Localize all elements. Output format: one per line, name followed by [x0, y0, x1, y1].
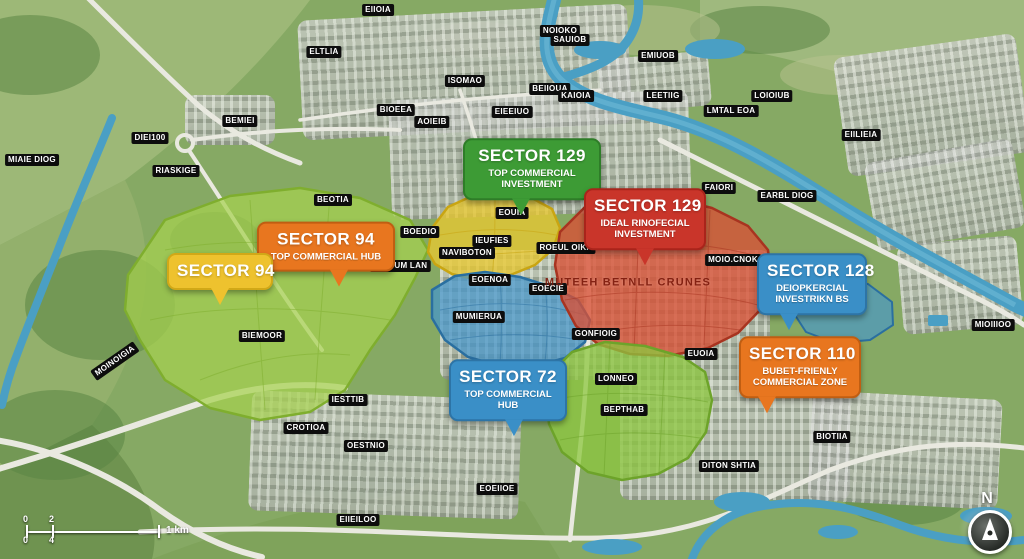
area-label-text: BEPTHAB [604, 405, 645, 414]
area-label: SAUIOB [551, 34, 590, 46]
area-label-text: LMTAL EOA [707, 106, 756, 115]
scale-label: 4 [49, 535, 54, 545]
callout-title: SECTOR 72 [459, 367, 557, 387]
area-label: BIEMOOR [239, 330, 285, 342]
area-label: LONNEO [595, 373, 637, 385]
area-label: IESTTIB [329, 394, 368, 406]
scale-label: 0 [23, 514, 28, 524]
area-label-text: ELTLIA [309, 47, 338, 56]
area-label: GONFIOIG [572, 328, 620, 340]
area-label: MOIO.CNOK [705, 254, 761, 266]
area-label: EOEIIOE [477, 483, 518, 495]
area-label-text: AOIEIB [417, 117, 446, 126]
callout-subtitle: TOP COMMERCIAL HUB [459, 389, 557, 412]
area-label-text: BOEDIO [403, 227, 436, 236]
area-label-text: LONNEO [598, 374, 634, 383]
area-label-text: BIOTIIA [816, 432, 847, 441]
area-label-text: NAVIBOTON [442, 248, 492, 257]
area-label-text: SAUIOB [554, 35, 587, 44]
area-label-text: EIEEIUO [495, 107, 530, 116]
scale-label-unit: 1 km [166, 525, 189, 536]
area-label-text: IEUFIES [475, 236, 508, 245]
area-label-text: BIEMOOR [242, 331, 282, 340]
area-label: MIAIE DIOG [5, 154, 59, 166]
area-label-text: IESTTIB [332, 395, 365, 404]
callout-sector-94-orange: SECTOR 94 TOP COMMERCIAL HUB [257, 222, 395, 272]
area-label: MUMIERUA [453, 311, 505, 323]
area-label-text: GONFIOIG [575, 329, 617, 338]
area-label-text: EIILIEIA [845, 130, 878, 139]
compass-center-dot [988, 530, 993, 535]
area-label-text: EMIUOB [641, 51, 675, 60]
area-label: BIOEEA [377, 104, 415, 116]
scale-bar: 0 2 1 km 0 4 [22, 516, 202, 550]
area-label: EUOIA [685, 348, 718, 360]
area-label-text: EARBL DIOG [760, 191, 813, 200]
scale-bar-line [26, 531, 160, 533]
area-label-text: BEOTIA [317, 195, 349, 204]
callout-subtitle: BUBET-FRIENLY COMMERCIAL ZONE [749, 366, 851, 389]
compass-arrow-icon [982, 518, 998, 540]
area-label: LEETIIG [643, 90, 682, 102]
area-label-text: BIOEEA [380, 105, 412, 114]
area-label: LOIOIUB [751, 90, 792, 102]
callout-title: SECTOR 94 [267, 230, 385, 250]
area-label: EIILIEIA [842, 129, 881, 141]
area-label-text: EOEIIOE [480, 484, 515, 493]
area-label: CROTIOA [284, 422, 329, 434]
area-label: MIOIIIOO [972, 319, 1015, 331]
area-label: ELTLIA [306, 46, 341, 58]
area-label: MUTEEH BETNLL CRUNES [545, 278, 711, 289]
area-label-text: CROTIOA [287, 423, 326, 432]
area-label: LMTAL EOA [704, 105, 759, 117]
area-label-text: BEMIEI [225, 116, 254, 125]
area-label-text: DIEI100 [134, 133, 165, 142]
area-label-text: EOENOA [472, 275, 508, 284]
area-label-text: FAIORI [705, 183, 733, 192]
callout-subtitle: DEIOPKERCIAL INVESTRIKN BS [767, 283, 857, 306]
area-label: BEMIEI [222, 115, 257, 127]
callout-subtitle: TOP COMMERCIAL HUB [267, 252, 385, 263]
area-label: EOENOA [469, 274, 511, 286]
area-label-text: RIASKIGE [155, 166, 196, 175]
area-label-text: OESTNIO [347, 441, 385, 450]
area-label-text: MUTEEH BETNLL CRUNES [545, 277, 711, 289]
compass-north-label: N [981, 490, 993, 508]
area-label: RIASKIGE [152, 165, 199, 177]
callout-sector-129-green: SECTOR 129 TOP COMMERCIAL INVESTMENT [463, 138, 601, 200]
area-label: BIOTIIA [813, 431, 850, 443]
area-label: EARBL DIOG [757, 190, 816, 202]
area-label: NAVIBOTON [439, 247, 495, 259]
area-label: EIEEIUO [492, 106, 533, 118]
area-label: FAIORI [702, 182, 736, 194]
area-label: EIIEILOO [336, 514, 379, 526]
area-label: IEUFIES [472, 235, 511, 247]
area-label: EMIUOB [638, 50, 678, 62]
callout-title: SECTOR 129 [473, 146, 591, 166]
callout-sector-94-yellow: SECTOR 94 [167, 253, 273, 290]
area-label-text: MOIO.CNOK [708, 255, 758, 264]
area-label: BOEDIO [400, 226, 439, 238]
scale-label: 0 [23, 535, 28, 545]
area-label-text: DITON SHTIA [702, 461, 756, 470]
area-label: EIIOIA [362, 4, 394, 16]
area-label: DIEI100 [131, 132, 168, 144]
area-label-text: MIOIIIOO [975, 320, 1012, 329]
callout-title: SECTOR 110 [749, 344, 851, 364]
area-label-text: KAIOIA [561, 91, 591, 100]
area-label-text: MUMIERUA [456, 312, 502, 321]
scale-tick [158, 525, 160, 538]
area-label-text: MIAIE DIOG [8, 155, 56, 164]
area-label: KAIOIA [558, 90, 594, 102]
area-label: BEOTIA [314, 194, 352, 206]
area-label-text: ISOMAO [448, 76, 482, 85]
callout-title: SECTOR 94 [177, 261, 263, 281]
area-label-text: EIIOIA [365, 5, 391, 14]
area-label: DITON SHTIA [699, 460, 759, 472]
callout-sector-72-blue: SECTOR 72 TOP COMMERCIAL HUB [449, 359, 567, 421]
compass: N [957, 492, 1017, 556]
area-label-text: EUOIA [688, 349, 715, 358]
compass-dial [968, 510, 1012, 554]
area-label: BEPTHAB [601, 404, 648, 416]
area-label: AOIEIB [414, 116, 449, 128]
callout-title: SECTOR 129 [594, 196, 696, 216]
area-label-text: LOIOIUB [754, 91, 789, 100]
callout-sector-110-orange: SECTOR 110 BUBET-FRIENLY COMMERCIAL ZONE [739, 336, 861, 398]
scale-label: 2 [49, 514, 54, 524]
callout-sector-129-red: SECTOR 129 IDEAL RINOFECIAL INVESTMENT [584, 188, 706, 250]
area-label-text: EIIEILOO [339, 515, 376, 524]
callout-subtitle: TOP COMMERCIAL INVESTMENT [473, 168, 591, 191]
area-label-text: LEETIIG [646, 91, 679, 100]
callout-title: SECTOR 128 [767, 261, 857, 281]
callout-subtitle: IDEAL RINOFECIAL INVESTMENT [594, 218, 696, 241]
map-stage: EIIOIAELTLIANOIOKOSAUIOBEMIUOBISOMAOBEII… [0, 0, 1024, 559]
area-label: ISOMAO [445, 75, 485, 87]
area-label: OESTNIO [344, 440, 388, 452]
callout-sector-128-blue: SECTOR 128 DEIOPKERCIAL INVESTRIKN BS [757, 253, 867, 315]
